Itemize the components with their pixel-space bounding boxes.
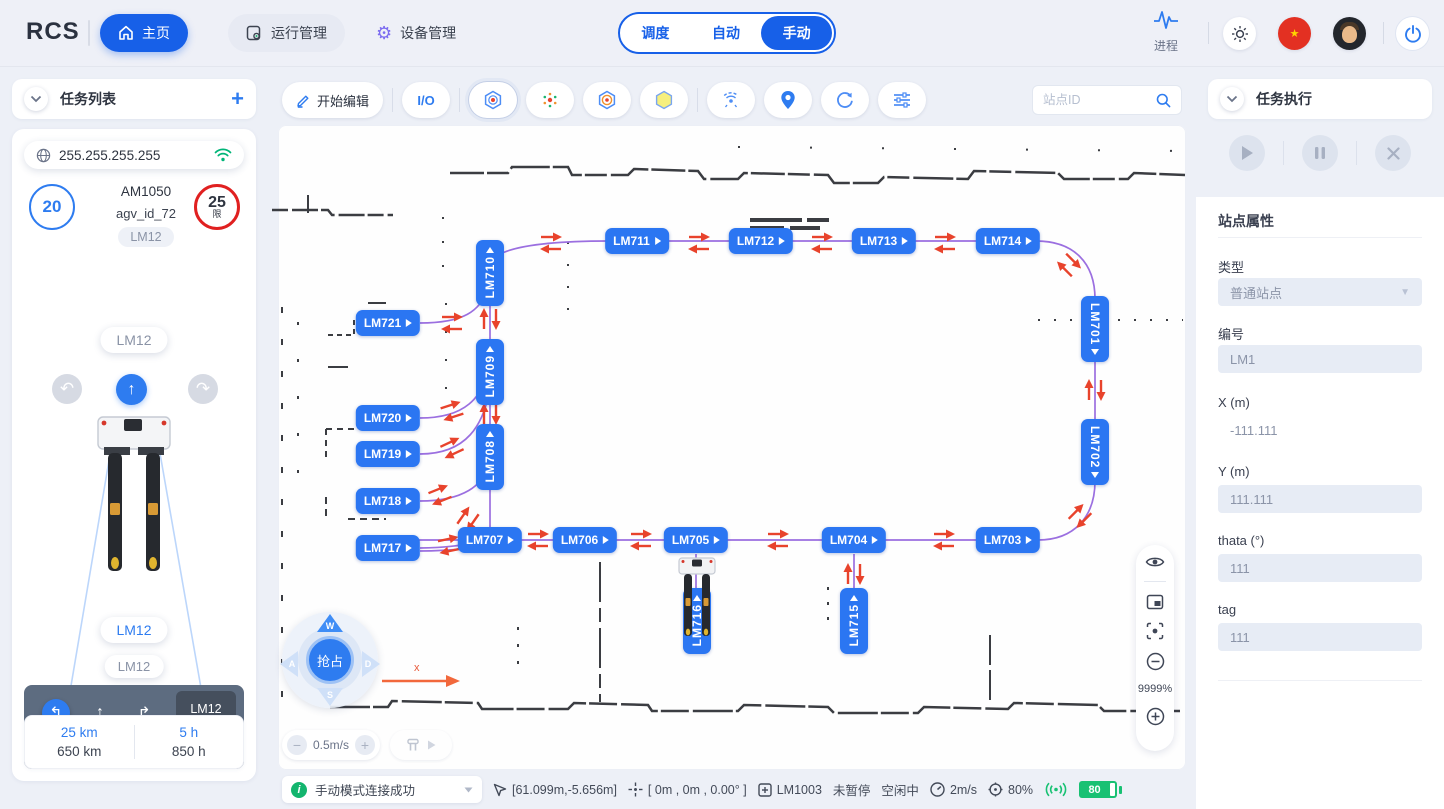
mode-toggle: 调度 自动 手动 <box>618 12 836 54</box>
play-button[interactable] <box>1229 135 1265 171</box>
chevron-down-icon <box>30 95 42 103</box>
code-input[interactable]: LM1 <box>1218 345 1422 373</box>
agv-card: 255.255.255.255 20 25限 AM1050 agv_id_72 … <box>12 129 256 781</box>
trip-hours: 5 h <box>179 725 198 740</box>
agv-ip: 255.255.255.255 <box>59 148 206 163</box>
station-node-LM703[interactable]: LM703 <box>976 527 1040 553</box>
station-node-LM711[interactable]: LM711 <box>605 228 669 254</box>
code-label: 编号 <box>1218 324 1244 343</box>
mode-tab-dispatch[interactable]: 调度 <box>620 23 691 43</box>
station-node-LM706[interactable]: LM706 <box>553 527 617 553</box>
type-label: 类型 <box>1218 257 1244 276</box>
station-node-LM717[interactable]: LM717 <box>356 535 420 561</box>
tag-input[interactable]: 111 <box>1218 623 1422 651</box>
total-distance: 650 km <box>57 744 101 759</box>
station-node-LM704[interactable]: LM704 <box>822 527 886 553</box>
process-button[interactable]: 进程 <box>1146 10 1186 54</box>
play-small-icon <box>427 740 436 750</box>
nav-item-label: 主页 <box>142 23 170 43</box>
station-node-LM712[interactable]: LM712 <box>729 228 793 254</box>
station-node-LM707[interactable]: LM707 <box>458 527 522 553</box>
minimap-button[interactable] <box>1146 594 1164 610</box>
process-label: 进程 <box>1146 37 1186 54</box>
forklift-robot-image <box>98 417 170 571</box>
map-origin-axis: x <box>368 659 478 699</box>
pause-button[interactable] <box>1302 135 1338 171</box>
collapse-button[interactable] <box>1220 87 1244 111</box>
speed-step-control: − 0.5m/s + <box>282 730 380 760</box>
nav-item-operation[interactable]: 运行管理 <box>228 14 345 52</box>
total-hours: 850 h <box>172 744 206 759</box>
station-node-LM714[interactable]: LM714 <box>976 228 1040 254</box>
station-node-LM705[interactable]: LM705 <box>664 527 728 553</box>
task-execution-panel: 任务执行 站点属性 类型 普通站点 ▼ 编号 LM1 X (m) -111.11… <box>1196 67 1444 809</box>
station-node-LM715[interactable]: LM715 <box>840 588 868 654</box>
map-area: 开始编辑 I/O <box>268 67 1196 809</box>
panel-title: 任务执行 <box>1256 89 1420 109</box>
sun-icon <box>1231 25 1249 43</box>
tag-label: tag <box>1218 602 1236 617</box>
add-task-button[interactable]: + <box>231 88 244 110</box>
fork-icon <box>406 738 420 752</box>
station-node-LM710[interactable]: LM710 <box>476 240 504 306</box>
agv-meta: AM1050 agv_id_72 LM12 <box>82 184 210 247</box>
station-node-LM709[interactable]: LM709 <box>476 339 504 405</box>
x-value[interactable]: -111.111 <box>1230 423 1277 438</box>
station-node-LM702[interactable]: LM702 <box>1081 419 1109 485</box>
close-icon <box>1387 147 1400 160</box>
station-node-LM701[interactable]: LM701 <box>1081 296 1109 362</box>
task-exec-controls <box>1196 131 1444 175</box>
mode-tab-manual[interactable]: 手动 <box>761 16 832 50</box>
map-view-palette: 9999% <box>1136 545 1174 751</box>
task-list-header: 任务列表 + <box>12 79 256 119</box>
agv-ip-row[interactable]: 255.255.255.255 <box>24 141 244 169</box>
monitor-gear-icon <box>246 25 263 41</box>
wifi-icon <box>214 148 232 162</box>
nav-item-device[interactable]: ⚙ 设备管理 <box>358 14 474 52</box>
mode-tab-auto[interactable]: 自动 <box>691 23 762 43</box>
trip-distance: 25 km <box>61 725 98 740</box>
nav-item-home[interactable]: 主页 <box>100 14 188 52</box>
next-station-pill: LM12 <box>105 655 164 678</box>
language-flag-button[interactable]: ★ <box>1278 17 1311 50</box>
collapse-button[interactable] <box>24 87 48 111</box>
map-forklift-robot[interactable] <box>675 556 719 644</box>
speed-decrease-button[interactable]: − <box>287 735 307 755</box>
station-node-LM708[interactable]: LM708 <box>476 424 504 490</box>
flag-icon: ★ <box>1290 27 1300 40</box>
speed-step-value: 0.5m/s <box>313 738 349 752</box>
cancel-button[interactable] <box>1375 135 1411 171</box>
waveform-icon <box>1153 10 1179 30</box>
theme-button[interactable] <box>1223 17 1256 50</box>
divider <box>1383 22 1384 44</box>
current-station-pill: LM12 <box>100 617 167 643</box>
divider <box>1144 581 1166 582</box>
app-logo: RCS <box>26 18 80 46</box>
station-pill: LM12 <box>118 227 173 247</box>
station-node-LM720[interactable]: LM720 <box>356 405 420 431</box>
station-properties-card: 站点属性 类型 普通站点 ▼ 编号 LM1 X (m) -111.111 Y (… <box>1196 197 1444 809</box>
agv-id: agv_id_72 <box>82 206 210 221</box>
axis-x-label: x <box>414 662 420 674</box>
play-icon <box>1240 145 1254 161</box>
gear-icon: ⚙ <box>376 24 392 42</box>
zoom-out-button[interactable] <box>1146 652 1165 671</box>
power-button[interactable] <box>1396 17 1429 50</box>
divider <box>1208 22 1209 44</box>
chevron-down-icon: ▼ <box>1400 287 1410 298</box>
theta-input[interactable]: 111 <box>1218 554 1422 582</box>
manual-joystick: W A D S 抢占 <box>282 612 378 708</box>
rcs-app: RCS 主页 运行管理 ⚙ 设备管理 调度 自动 手动 进程 ★ <box>0 0 1444 809</box>
y-label: Y (m) <box>1218 464 1250 479</box>
visibility-button[interactable] <box>1145 555 1165 569</box>
y-input[interactable]: 111.111 <box>1218 485 1422 513</box>
theta-label: thata (°) <box>1218 533 1264 548</box>
fork-action-button[interactable] <box>390 730 452 760</box>
type-select[interactable]: 普通站点 ▼ <box>1218 278 1422 306</box>
pause-icon <box>1314 146 1326 160</box>
chevron-down-icon <box>1226 95 1238 103</box>
task-list-panel: 任务列表 + 255.255.255.255 20 25限 AM1050 agv… <box>0 67 268 809</box>
task-exec-header: 任务执行 <box>1208 79 1432 119</box>
agv-model: AM1050 <box>82 184 210 199</box>
odometer-card: 25 km 650 km 5 h 850 h <box>24 715 244 769</box>
top-navbar: RCS 主页 运行管理 ⚙ 设备管理 调度 自动 手动 进程 ★ <box>0 0 1444 67</box>
speed-badge: 20 <box>29 184 75 230</box>
station-node-LM713[interactable]: LM713 <box>852 228 916 254</box>
home-icon <box>118 25 134 41</box>
panel-title: 任务列表 <box>60 89 231 109</box>
power-icon <box>1404 25 1422 43</box>
nav-item-label: 设备管理 <box>400 23 456 43</box>
center-focus-button[interactable] <box>1146 622 1164 640</box>
station-pill: LM12 <box>100 327 167 353</box>
user-avatar[interactable] <box>1333 17 1366 50</box>
station-node-LM721[interactable]: LM721 <box>356 310 420 336</box>
zoom-level: 9999% <box>1138 683 1172 695</box>
x-label: X (m) <box>1218 395 1250 410</box>
globe-icon <box>36 148 51 163</box>
station-node-LM718[interactable]: LM718 <box>356 488 420 514</box>
speed-increase-button[interactable]: + <box>355 735 375 755</box>
divider <box>88 20 90 46</box>
zoom-in-button[interactable] <box>1146 707 1165 726</box>
nav-item-label: 运行管理 <box>271 23 327 43</box>
seize-control-button[interactable]: 抢占 <box>306 636 354 684</box>
station-node-LM719[interactable]: LM719 <box>356 441 420 467</box>
properties-title: 站点属性 <box>1218 211 1274 231</box>
